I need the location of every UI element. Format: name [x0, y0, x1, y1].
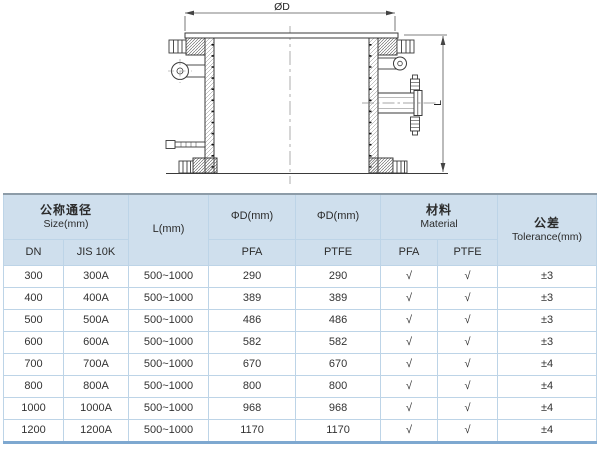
top-left-flange-block	[186, 38, 205, 55]
dim-arrow-right	[386, 11, 395, 16]
table-cell: 1000	[4, 398, 64, 420]
table-cell: 500~1000	[129, 266, 209, 288]
table-cell: 300	[4, 266, 64, 288]
header-d-pfa: ΦD(mm)	[209, 194, 296, 240]
table-cell: 500~1000	[129, 398, 209, 420]
subheader-dn: DN	[4, 240, 64, 266]
header-tolerance-zh: 公差	[498, 216, 596, 231]
table-cell: √	[381, 266, 438, 288]
table-cell: 1200	[4, 420, 64, 443]
table-cell: 800	[296, 376, 381, 398]
table-cell: 800	[4, 376, 64, 398]
top-right-clamp	[397, 40, 414, 53]
table-cell: 700	[4, 354, 64, 376]
bottom-right-clamp	[393, 161, 407, 173]
table-cell: √	[438, 310, 498, 332]
table-cell: 670	[296, 354, 381, 376]
table-cell: 582	[209, 332, 296, 354]
table-cell: ±4	[498, 420, 597, 443]
table-cell: √	[438, 420, 498, 443]
table-cell: √	[438, 288, 498, 310]
table-row: 800800A500~1000800800√√±4	[4, 376, 597, 398]
table-cell: 500	[4, 310, 64, 332]
table-cell: 389	[209, 288, 296, 310]
table-cell: ±4	[498, 376, 597, 398]
table-body: 300300A500~1000290290√√±3400400A500~1000…	[4, 266, 597, 443]
table-cell: √	[438, 332, 498, 354]
table-row: 12001200A500~100011701170√√±4	[4, 420, 597, 443]
table-cell: 500~1000	[129, 354, 209, 376]
bottom-right-flange-block	[369, 158, 393, 173]
table-cell: 1200A	[64, 420, 129, 443]
left-wall	[205, 38, 214, 173]
table-cell: 968	[296, 398, 381, 420]
spec-table: 公称通径 Size(mm) L(mm) ΦD(mm) ΦD(mm) 材料 Mat…	[3, 193, 597, 444]
header-size-en: Size(mm)	[4, 218, 128, 231]
top-left-eyebolt-crosshair	[168, 59, 192, 83]
table-cell: √	[381, 332, 438, 354]
table-cell: √	[381, 354, 438, 376]
dim-arrow-top	[441, 36, 446, 45]
technical-drawing: ØD	[0, 0, 600, 193]
header-material-zh: 材料	[381, 203, 497, 218]
table-row: 400400A500~1000389389√√±3	[4, 288, 597, 310]
header-size-group: 公称通径 Size(mm)	[4, 194, 129, 240]
table-row: 600600A500~1000582582√√±3	[4, 332, 597, 354]
table-cell: 300A	[64, 266, 129, 288]
table-cell: ±3	[498, 288, 597, 310]
header-tolerance-en: Tolerance(mm)	[498, 231, 596, 244]
table-cell: 968	[209, 398, 296, 420]
table-cell: 700A	[64, 354, 129, 376]
dim-arrow-bottom	[441, 163, 446, 172]
table-cell: ±3	[498, 310, 597, 332]
table-cell: √	[381, 288, 438, 310]
subheader-ptfe-m: PTFE	[438, 240, 498, 266]
table-cell: √	[381, 310, 438, 332]
table-cell: 486	[209, 310, 296, 332]
table-cell: 500A	[64, 310, 129, 332]
table-cell: 290	[296, 266, 381, 288]
subheader-pfa-m: PFA	[381, 240, 438, 266]
table-row: 10001000A500~1000968968√√±4	[4, 398, 597, 420]
table-cell: 1170	[209, 420, 296, 443]
table-row: 500500A500~1000486486√√±3	[4, 310, 597, 332]
table-cell: √	[381, 398, 438, 420]
subheader-ptfe-d: PTFE	[296, 240, 381, 266]
table-cell: ±4	[498, 354, 597, 376]
table-row: 700700A500~1000670670√√±4	[4, 354, 597, 376]
header-d-ptfe: ΦD(mm)	[296, 194, 381, 240]
table-cell: √	[438, 266, 498, 288]
subheader-pfa-d: PFA	[209, 240, 296, 266]
table-cell: 486	[296, 310, 381, 332]
header-material-group: 材料 Material	[381, 194, 498, 240]
header-material-en: Material	[381, 218, 497, 231]
table-cell: 800	[209, 376, 296, 398]
bottom-left-clamp	[179, 161, 193, 173]
table-cell: ±3	[498, 332, 597, 354]
top-left-clamp	[169, 40, 186, 53]
table-cell: 1000A	[64, 398, 129, 420]
side-bolt	[166, 141, 205, 149]
table-cell: 389	[296, 288, 381, 310]
top-right-flange-block	[378, 38, 397, 55]
subheader-jis: JIS 10K	[64, 240, 129, 266]
table-cell: 670	[209, 354, 296, 376]
pipe-cross-section-svg: ØD	[0, 0, 600, 193]
table-cell: 500~1000	[129, 332, 209, 354]
bottom-left-flange-block	[193, 158, 217, 173]
table-cell: 500~1000	[129, 310, 209, 332]
table-cell: 500~1000	[129, 376, 209, 398]
table-cell: 1170	[296, 420, 381, 443]
dim-arrow-left	[185, 11, 194, 16]
table-cell: 800A	[64, 376, 129, 398]
right-wall	[369, 38, 378, 173]
header-tolerance: 公差 Tolerance(mm)	[498, 194, 597, 266]
table-cell: √	[438, 376, 498, 398]
table-cell: 582	[296, 332, 381, 354]
nozzle-lower-stud	[411, 117, 420, 135]
table-row: 300300A500~1000290290√√±3	[4, 266, 597, 288]
table-cell: 600A	[64, 332, 129, 354]
table-cell: √	[381, 420, 438, 443]
table-cell: 500~1000	[129, 420, 209, 443]
table-cell: 400A	[64, 288, 129, 310]
table-cell: ±4	[498, 398, 597, 420]
table-cell: 600	[4, 332, 64, 354]
dim-length-label: L	[432, 100, 444, 106]
table-cell: √	[381, 376, 438, 398]
table-cell: 400	[4, 288, 64, 310]
top-lid-plate	[185, 33, 398, 38]
table-cell: ±3	[498, 266, 597, 288]
table-cell: 500~1000	[129, 288, 209, 310]
table-cell: √	[438, 354, 498, 376]
header-l: L(mm)	[129, 194, 209, 266]
header-size-zh: 公称通径	[4, 203, 128, 218]
dim-diameter-label: ØD	[274, 1, 290, 13]
table-cell: 290	[209, 266, 296, 288]
top-right-eyebolt	[394, 57, 407, 70]
table-cell: √	[438, 398, 498, 420]
